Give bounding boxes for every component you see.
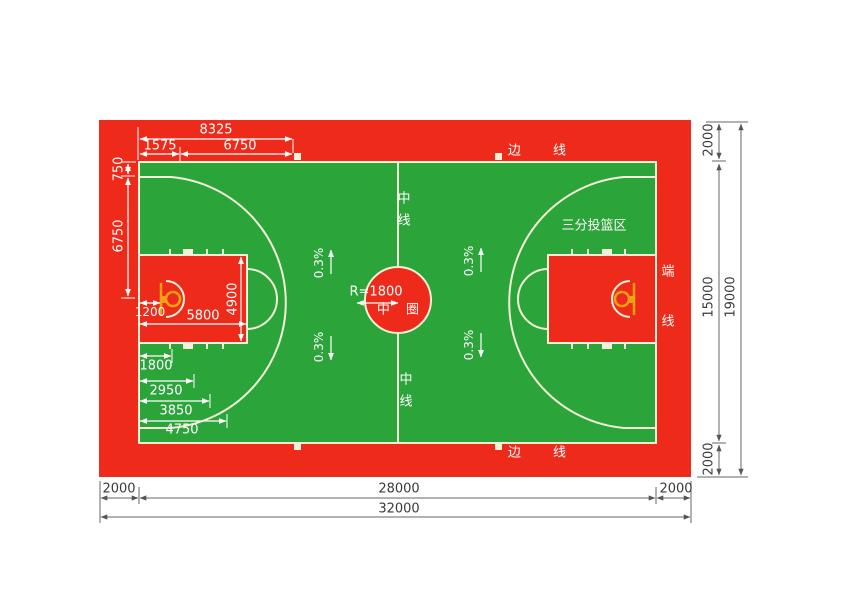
dim-apron-right: 2000 bbox=[659, 483, 692, 496]
slope-label-lower-left: 0.3% bbox=[313, 332, 325, 363]
dim-sideline-to-basket-axis: 6750 bbox=[113, 219, 126, 252]
dim-backboard-offset: 1200 bbox=[135, 306, 166, 318]
dim-lane-mark-3: 3850 bbox=[159, 405, 192, 418]
slope-label-upper-right: 0.3% bbox=[463, 246, 475, 277]
center-circle-radius-label: R=1800 bbox=[349, 286, 402, 299]
sideline-label-bottom: 边 线 bbox=[508, 447, 580, 460]
dim-apron-bottom: 2000 bbox=[703, 442, 716, 475]
slope-label-lower-right: 0.3% bbox=[463, 330, 475, 361]
dim-total-width: 19000 bbox=[725, 276, 738, 317]
dim-key-width: 4900 bbox=[227, 282, 240, 315]
dim-endline-to-basket: 1575 bbox=[143, 140, 176, 153]
center-line-label-top-char1: 中 bbox=[397, 193, 410, 206]
dim-endline-to-arc: 8325 bbox=[199, 124, 232, 137]
dim-lane-mark-2: 2950 bbox=[149, 385, 182, 398]
three-point-area-label: 三分投篮区 bbox=[561, 220, 626, 233]
dim-court-length: 28000 bbox=[378, 483, 419, 496]
dim-apron-left: 2000 bbox=[102, 483, 135, 496]
dim-lane-mark-4: 4750 bbox=[165, 424, 198, 437]
center-line-label-bottom-char2: 线 bbox=[399, 396, 412, 409]
dim-key-length: 5800 bbox=[186, 310, 219, 323]
dim-sideline-to-3pt: 750 bbox=[113, 157, 126, 182]
dim-apron-top: 2000 bbox=[703, 123, 716, 156]
center-circle-label: 中 圈 bbox=[377, 304, 425, 317]
dim-total-length: 32000 bbox=[378, 503, 419, 516]
center-circle bbox=[365, 267, 431, 333]
key-right bbox=[548, 255, 656, 343]
dim-lane-mark-1: 1800 bbox=[139, 360, 172, 373]
center-line-label-top-char2: 线 bbox=[397, 215, 410, 228]
center-line-label-bottom-char1: 中 bbox=[399, 374, 412, 387]
dim-arc-radius: 6750 bbox=[223, 140, 256, 153]
sideline-label-top: 边 线 bbox=[508, 145, 580, 158]
dim-court-width: 15000 bbox=[703, 276, 716, 317]
endline-label-char2: 线 bbox=[661, 316, 674, 329]
endline-label-char1: 端 bbox=[661, 266, 674, 279]
slope-label-upper-left: 0.3% bbox=[313, 248, 325, 279]
basketball-court-dimension-diagram: 8325 1575 6750 750 6750 1200 5800 4900 1… bbox=[0, 0, 862, 609]
